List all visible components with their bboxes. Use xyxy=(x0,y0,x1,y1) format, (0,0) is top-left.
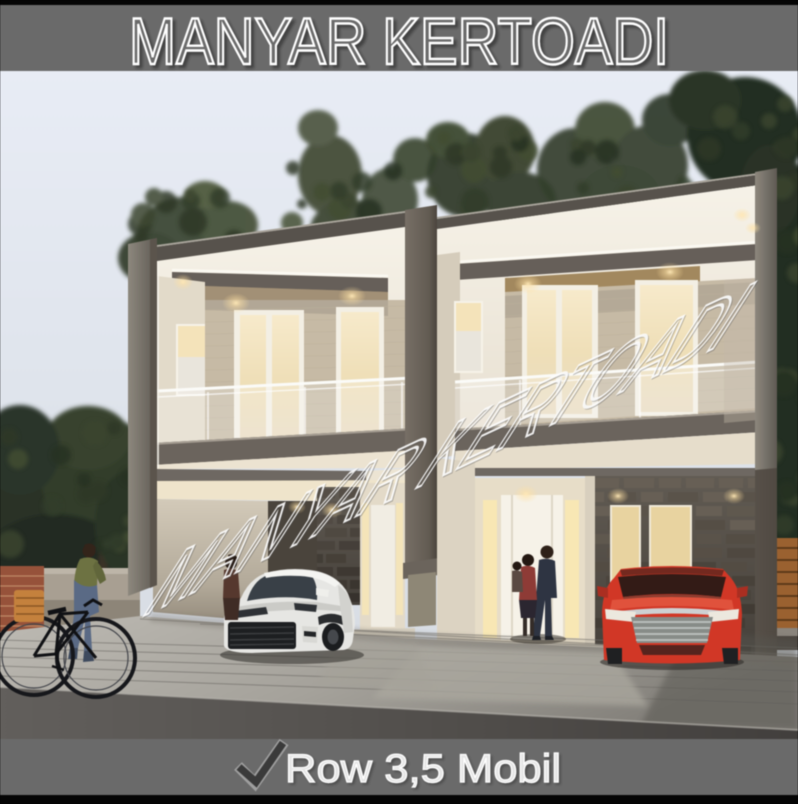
svg-text:MANYAR KERTOADI: MANYAR KERTOADI xyxy=(129,4,669,78)
svg-text:Row 3,5 Mobil: Row 3,5 Mobil xyxy=(285,747,561,791)
